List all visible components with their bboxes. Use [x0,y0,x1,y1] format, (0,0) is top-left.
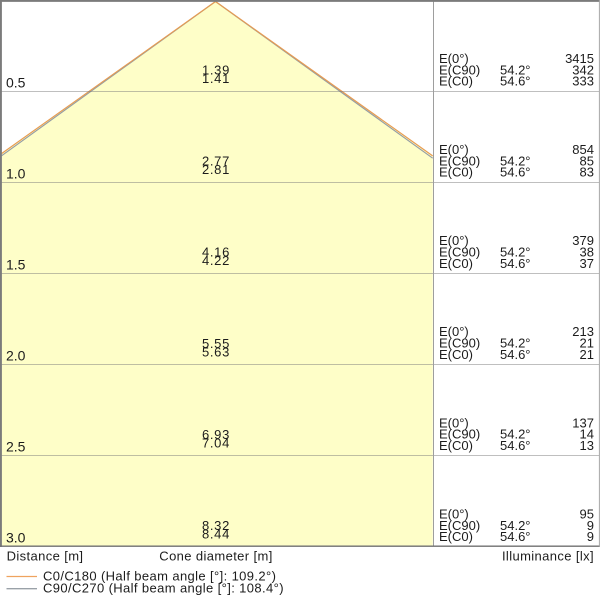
svg-text:C90/C270 (Half beam angle [°]:: C90/C270 (Half beam angle [°]: 108.4°) [43,581,284,596]
svg-text:1.41: 1.41 [202,71,230,86]
svg-text:9: 9 [587,529,594,544]
svg-text:54.6°: 54.6° [500,438,531,453]
svg-text:Distance [m]: Distance [m] [7,548,84,563]
svg-text:E(C0): E(C0) [439,438,473,453]
svg-text:54.6°: 54.6° [500,165,531,180]
svg-text:2.5: 2.5 [6,439,26,455]
svg-text:0.5: 0.5 [6,75,26,91]
svg-text:54.6°: 54.6° [500,529,531,544]
svg-text:E(C0): E(C0) [439,74,473,89]
svg-text:E(C0): E(C0) [439,347,473,362]
svg-text:333: 333 [572,74,594,89]
svg-text:54.6°: 54.6° [500,347,531,362]
svg-text:Cone diameter [m]: Cone diameter [m] [159,548,272,563]
svg-text:4.22: 4.22 [202,253,230,268]
svg-text:7.04: 7.04 [202,435,230,450]
svg-text:Illuminance [lx]: Illuminance [lx] [502,548,594,563]
svg-text:21: 21 [580,347,594,362]
svg-text:8.44: 8.44 [202,527,230,542]
svg-text:13: 13 [580,438,594,453]
svg-text:E(C0): E(C0) [439,256,473,271]
svg-text:54.6°: 54.6° [500,256,531,271]
svg-text:37: 37 [580,256,594,271]
svg-text:5.63: 5.63 [202,344,230,359]
svg-text:1.5: 1.5 [6,257,26,273]
svg-text:3.0: 3.0 [6,530,26,546]
svg-text:54.6°: 54.6° [500,74,531,89]
svg-text:2.81: 2.81 [202,162,230,177]
svg-text:2.0: 2.0 [6,348,26,364]
svg-text:E(C0): E(C0) [439,165,473,180]
svg-text:1.0: 1.0 [6,166,26,182]
svg-text:E(C0): E(C0) [439,529,473,544]
svg-text:83: 83 [580,165,594,180]
